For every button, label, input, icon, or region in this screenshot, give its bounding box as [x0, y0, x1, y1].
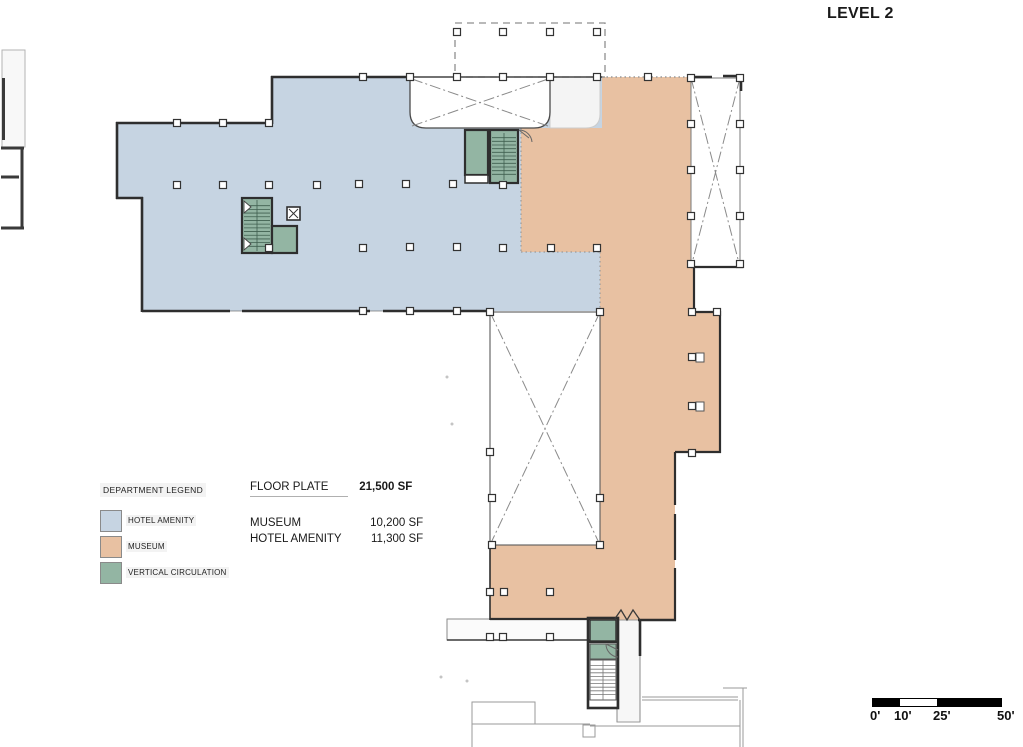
neighbor-building-outline: [583, 725, 595, 737]
corridor: [617, 620, 640, 722]
department-area-rows: MUSEUM 10,200 SF HOTEL AMENITY 11,300 SF: [250, 515, 423, 547]
legend-item-vertical-circulation: VERTICAL CIRCULATION: [100, 562, 229, 583]
column-marker: [688, 167, 695, 174]
column-marker: [454, 244, 461, 251]
column-marker: [487, 634, 494, 641]
survey-dot: [446, 376, 449, 379]
column-marker: [547, 74, 554, 81]
survey-dot: [466, 680, 469, 683]
floor-plate-row: FLOOR PLATE 21,500 SF: [250, 481, 423, 497]
column-marker: [547, 589, 554, 596]
column-marker: [714, 309, 721, 316]
column-marker: [737, 167, 744, 174]
floor-plate-value: 21,500 SF: [359, 481, 412, 493]
column-marker: [597, 309, 604, 316]
legend-item-hotel-amenity: HOTEL AMENITY: [100, 510, 229, 531]
neighbor-building-outline: [472, 702, 535, 724]
scale-label-50: 50': [997, 708, 1015, 723]
column-marker: [688, 121, 695, 128]
column-marker: [597, 495, 604, 502]
column-marker: [547, 634, 554, 641]
hotel-amenity-swatch: [100, 510, 122, 532]
column-marker: [454, 29, 461, 36]
column-marker: [174, 120, 181, 127]
column-marker: [450, 181, 457, 188]
column-marker: [500, 634, 507, 641]
hotel-amenity-area-value: 11,300 SF: [355, 531, 423, 547]
museum-area-value: 10,200 SF: [355, 515, 423, 531]
column-marker: [500, 29, 507, 36]
column-marker: [689, 354, 696, 361]
column-marker: [737, 261, 744, 268]
column-marker: [266, 182, 273, 189]
column-marker: [360, 74, 367, 81]
column-marker: [645, 74, 652, 81]
column-marker: [403, 181, 410, 188]
column-marker: [174, 182, 181, 189]
column-marker: [489, 542, 496, 549]
column-marker: [689, 309, 696, 316]
column-marker: [688, 261, 695, 268]
scale-bar-segment: [873, 699, 899, 706]
column-marker: [688, 75, 695, 82]
column-marker: [487, 589, 494, 596]
column-marker: [547, 29, 554, 36]
column-marker: [487, 309, 494, 316]
stair-core-south-lobby: [590, 644, 616, 659]
column-marker: [407, 74, 414, 81]
stair-core-south-elevator: [590, 620, 616, 641]
column-marker: [454, 74, 461, 81]
survey-dot: [440, 676, 443, 679]
terrace-strip: [447, 619, 590, 640]
column-marker: [407, 244, 414, 251]
stair-core-north-landing: [465, 175, 488, 183]
museum-area-label: MUSEUM: [250, 515, 352, 531]
door-marker: [696, 402, 704, 411]
hotel-amenity-area-label: HOTEL AMENITY: [250, 531, 352, 547]
column-marker: [356, 181, 363, 188]
column-marker: [548, 245, 555, 252]
scale-bar-segment: [899, 699, 938, 706]
museum-area-row: MUSEUM 10,200 SF: [250, 515, 423, 531]
scale-label-10: 10': [894, 708, 912, 723]
museum-swatch: [100, 536, 122, 558]
floor-plan-page: LEVEL 2 DEPARTMENT LEGEND HOTEL AMENITY …: [0, 0, 1023, 747]
scale-label-0: 0': [870, 708, 880, 723]
column-marker: [487, 449, 494, 456]
column-marker: [501, 589, 508, 596]
column-marker: [500, 74, 507, 81]
survey-dot: [451, 423, 454, 426]
column-marker: [737, 213, 744, 220]
stair-core-north-elevator: [465, 130, 488, 175]
column-marker: [220, 120, 227, 127]
scale-bar: [872, 698, 1002, 707]
column-marker: [360, 245, 367, 252]
neighbor-building-left-body: [2, 50, 25, 147]
stair-core-west-annex: [272, 226, 297, 253]
column-marker: [689, 403, 696, 410]
floor-plan-svg: [0, 0, 1023, 747]
column-marker: [737, 75, 744, 82]
floor-plate-label: FLOOR PLATE: [250, 481, 348, 497]
column-marker: [594, 29, 601, 36]
area-stats: FLOOR PLATE 21,500 SF MUSEUM 10,200 SF H…: [250, 481, 423, 547]
legend-label-museum: MUSEUM: [126, 541, 167, 552]
legend-heading: DEPARTMENT LEGEND: [100, 483, 206, 497]
column-marker: [737, 121, 744, 128]
hotel-amenity-area-row: HOTEL AMENITY 11,300 SF: [250, 531, 423, 547]
legend-label-hotel-amenity: HOTEL AMENITY: [126, 515, 196, 526]
column-marker: [454, 308, 461, 315]
column-marker: [266, 245, 273, 252]
roof-terrace-region: [550, 77, 600, 128]
column-marker: [500, 245, 507, 252]
column-marker: [360, 308, 367, 315]
column-marker: [314, 182, 321, 189]
column-marker: [597, 542, 604, 549]
column-marker: [407, 308, 414, 315]
column-marker: [220, 182, 227, 189]
column-marker: [688, 213, 695, 220]
column-marker: [489, 495, 496, 502]
column-marker: [689, 450, 696, 457]
legend-item-museum: MUSEUM: [100, 536, 229, 557]
vertical-circulation-swatch: [100, 562, 122, 584]
department-legend: DEPARTMENT LEGEND HOTEL AMENITY MUSEUM V…: [100, 480, 229, 583]
column-marker: [594, 74, 601, 81]
scale-label-25: 25': [933, 708, 951, 723]
column-marker: [500, 182, 507, 189]
scale-bar-segment: [938, 699, 1001, 706]
door-marker: [696, 353, 704, 362]
column-marker: [594, 245, 601, 252]
page-title: LEVEL 2: [827, 5, 894, 23]
legend-label-vertical-circulation: VERTICAL CIRCULATION: [126, 567, 229, 578]
future-expansion-dashed-outline: [455, 23, 605, 77]
column-marker: [266, 120, 273, 127]
